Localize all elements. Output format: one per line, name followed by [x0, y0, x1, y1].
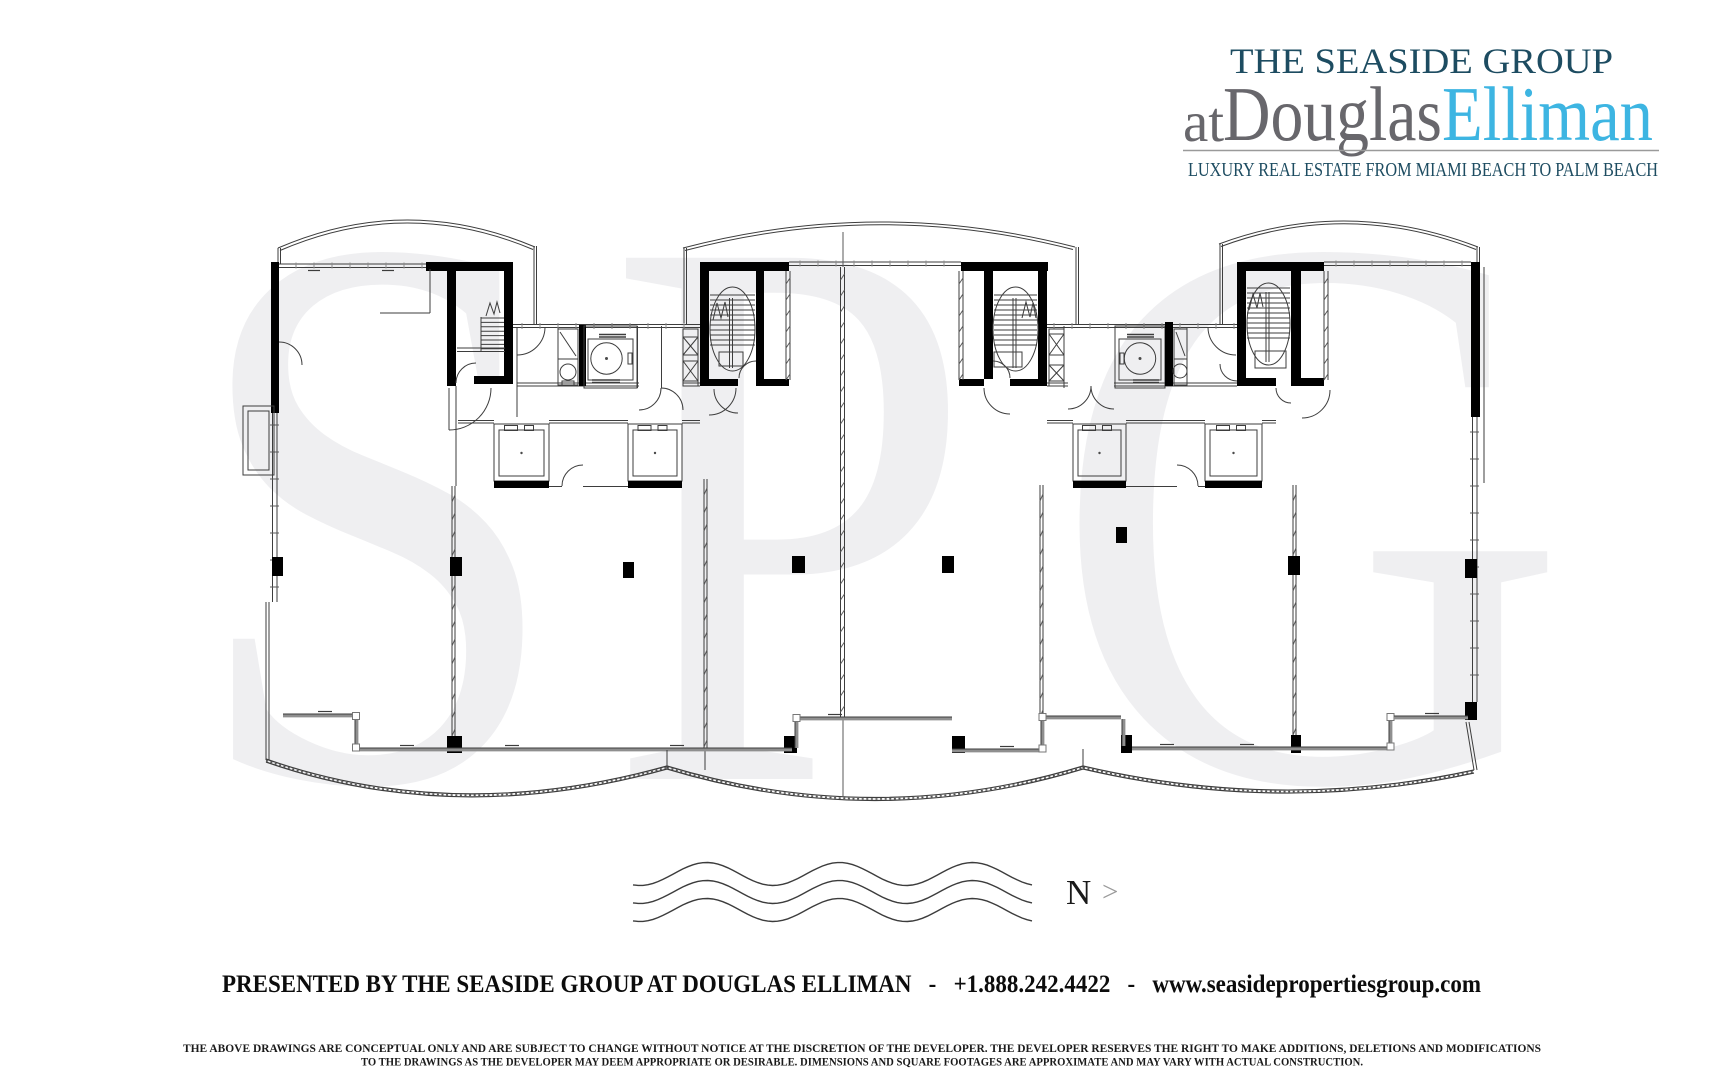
svg-text:at: at [1183, 91, 1224, 154]
svg-text:LUXURY REAL ESTATE FROM MIAMI: LUXURY REAL ESTATE FROM MIAMI BEACH TO P… [1188, 160, 1658, 181]
svg-text:N: N [1066, 873, 1091, 912]
svg-text:Elliman: Elliman [1442, 71, 1653, 157]
svg-text:PRESENTED BY THE SEASIDE GROUP: PRESENTED BY THE SEASIDE GROUP AT DOUGLA… [222, 969, 1481, 998]
svg-text:S: S [187, 71, 565, 952]
svg-text:Douglas: Douglas [1223, 71, 1442, 157]
svg-text:THE ABOVE DRAWINGS ARE CONCEPT: THE ABOVE DRAWINGS ARE CONCEPTUAL ONLY A… [183, 1041, 1541, 1055]
svg-text:P: P [607, 71, 974, 952]
svg-text:TO THE DRAWINGS AS THE DEVELOP: TO THE DRAWINGS AS THE DEVELOPER MAY DEE… [361, 1055, 1363, 1069]
svg-text:>: > [1102, 876, 1118, 908]
svg-text:G: G [1050, 71, 1570, 952]
